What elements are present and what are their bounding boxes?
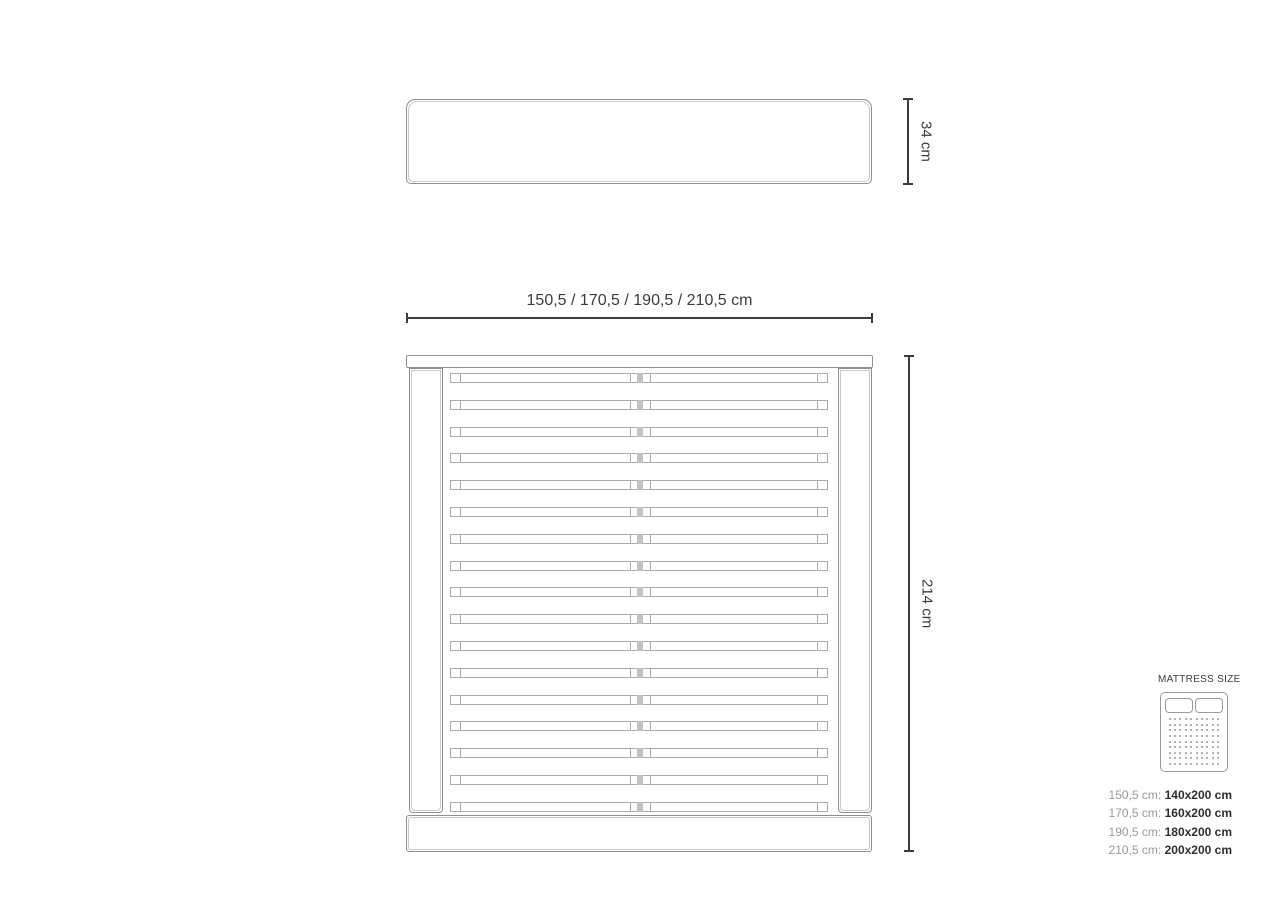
center-rail-bar (637, 695, 643, 705)
legend-row: 210,5 cm: 200x200 cm (1109, 841, 1232, 859)
dot (1185, 735, 1187, 737)
dot (1196, 735, 1198, 737)
dot (1169, 741, 1171, 743)
dot (1190, 741, 1192, 743)
slat-clip (817, 561, 828, 571)
slat-clip (817, 507, 828, 517)
dot (1217, 763, 1219, 765)
dot (1190, 752, 1192, 754)
dot (1212, 763, 1214, 765)
mattress-size-value: 180x200 cm (1165, 825, 1232, 839)
mattress-size-legend: MATTRESS SIZE 150,5 cm: 140x200 cm 170,5… (1090, 674, 1232, 859)
center-rail-bar (637, 427, 643, 437)
slat (450, 668, 828, 678)
center-rail-bar (637, 400, 643, 410)
slat (450, 561, 828, 571)
dot (1212, 741, 1214, 743)
dot (1179, 718, 1181, 720)
dot (1196, 724, 1198, 726)
dot (1196, 757, 1198, 759)
slat (450, 802, 828, 812)
slat-clip (450, 802, 461, 812)
center-rail-line (650, 641, 651, 651)
slat-clip (450, 453, 461, 463)
center-rail-bar (637, 534, 643, 544)
dimension-cap (903, 98, 913, 100)
center-rail-line (650, 587, 651, 597)
dot (1185, 746, 1187, 748)
dot (1185, 724, 1187, 726)
center-rail-line (630, 373, 631, 383)
center-rail-bar (637, 668, 643, 678)
center-rail-line (650, 775, 651, 785)
slat-clip (450, 641, 461, 651)
left-side-rail (409, 368, 443, 813)
dot (1201, 729, 1203, 731)
dimension-cap (904, 850, 914, 852)
center-rail-bar (637, 561, 643, 571)
slat (450, 748, 828, 758)
center-rail-bar (637, 614, 643, 624)
dot (1206, 735, 1208, 737)
headboard-height-dimension-line (907, 98, 909, 185)
dot (1179, 746, 1181, 748)
dot (1217, 746, 1219, 748)
dot (1206, 729, 1208, 731)
center-rail-bar (637, 373, 643, 383)
dot (1212, 729, 1214, 731)
center-rail-line (650, 668, 651, 678)
frame-width-label: 210,5 cm: (1109, 843, 1162, 857)
slat-clip (817, 748, 828, 758)
mattress-icon-block: MATTRESS SIZE (1158, 674, 1230, 772)
frame-width-label: 150,5 cm: (1109, 788, 1162, 802)
center-rail-line (650, 561, 651, 571)
slat-clip (817, 480, 828, 490)
slat (450, 507, 828, 517)
dot (1206, 757, 1208, 759)
center-rail-line (650, 534, 651, 544)
dot (1179, 757, 1181, 759)
slat-clip (450, 507, 461, 517)
slat (450, 427, 828, 437)
dot (1169, 746, 1171, 748)
dot (1212, 746, 1214, 748)
dot (1174, 746, 1176, 748)
center-rail-bar (637, 721, 643, 731)
center-rail-line (630, 802, 631, 812)
dot (1185, 718, 1187, 720)
dot (1174, 735, 1176, 737)
dot (1196, 718, 1198, 720)
dot (1201, 718, 1203, 720)
dot (1196, 741, 1198, 743)
slats-container (450, 368, 828, 815)
legend-row: 150,5 cm: 140x200 cm (1109, 786, 1232, 804)
center-rail-bar (637, 480, 643, 490)
slat (450, 453, 828, 463)
dot (1212, 757, 1214, 759)
dot (1201, 735, 1203, 737)
center-rail-line (650, 802, 651, 812)
center-rail-line (630, 748, 631, 758)
slat (450, 721, 828, 731)
dot (1206, 724, 1208, 726)
center-rail-line (630, 668, 631, 678)
dot (1190, 718, 1192, 720)
slat-clip (450, 748, 461, 758)
slat-clip (450, 721, 461, 731)
center-rail-line (650, 695, 651, 705)
center-rail-bar (637, 775, 643, 785)
dot (1206, 741, 1208, 743)
slat-clip (817, 668, 828, 678)
mattress-dots (1167, 718, 1221, 765)
slat (450, 775, 828, 785)
headboard-side-view (406, 99, 872, 184)
right-side-rail (838, 368, 872, 813)
dot (1201, 757, 1203, 759)
slat-clip (817, 695, 828, 705)
dot (1169, 763, 1171, 765)
mattress-size-value: 200x200 cm (1165, 843, 1232, 857)
dot (1212, 718, 1214, 720)
dot (1206, 746, 1208, 748)
slat-clip (450, 668, 461, 678)
dot (1212, 752, 1214, 754)
legend-row: 170,5 cm: 160x200 cm (1109, 804, 1232, 822)
dot (1179, 752, 1181, 754)
slat-clip (817, 427, 828, 437)
dimension-tick (406, 313, 408, 323)
slat-clip (817, 373, 828, 383)
dot (1190, 763, 1192, 765)
center-rail-line (630, 587, 631, 597)
slat (450, 641, 828, 651)
center-rail-bar (637, 507, 643, 517)
dot (1185, 752, 1187, 754)
center-rail-line (650, 614, 651, 624)
dot (1174, 718, 1176, 720)
length-dimension-label: 214 cm (914, 355, 940, 852)
dot (1169, 757, 1171, 759)
center-rail-line (650, 748, 651, 758)
slat-clip (817, 775, 828, 785)
dot (1169, 718, 1171, 720)
dimension-tick (871, 313, 873, 323)
dot (1201, 724, 1203, 726)
dot (1196, 763, 1198, 765)
center-rail-line (630, 641, 631, 651)
slat-clip (817, 400, 828, 410)
headboard-height-dimension-label: 34 cm (913, 98, 939, 185)
slat-clip (450, 775, 461, 785)
slat-clip (817, 614, 828, 624)
dot (1206, 752, 1208, 754)
dot (1201, 741, 1203, 743)
dot (1217, 752, 1219, 754)
slat-clip (817, 641, 828, 651)
dot (1217, 757, 1219, 759)
dimension-cap (904, 355, 914, 357)
dot (1206, 718, 1208, 720)
center-rail-line (630, 427, 631, 437)
center-rail-line (650, 480, 651, 490)
dot (1169, 729, 1171, 731)
slat-clip (817, 721, 828, 731)
dot (1190, 735, 1192, 737)
center-rail-line (630, 561, 631, 571)
dot (1179, 741, 1181, 743)
center-rail-line (630, 507, 631, 517)
dot (1217, 735, 1219, 737)
dot (1201, 752, 1203, 754)
center-rail-bar (637, 641, 643, 651)
center-rail-line (630, 453, 631, 463)
dot (1185, 741, 1187, 743)
dot (1190, 724, 1192, 726)
dot (1174, 763, 1176, 765)
dot (1185, 763, 1187, 765)
dot (1174, 757, 1176, 759)
width-dimension-label: 150,5 / 170,5 / 190,5 / 210,5 cm (406, 292, 873, 310)
bed-dimension-diagram: 34 cm 150,5 / 170,5 / 190,5 / 210,5 cm 2… (0, 0, 1280, 905)
slat (450, 534, 828, 544)
dot (1212, 724, 1214, 726)
pillow-icon (1195, 698, 1223, 713)
center-rail-line (630, 695, 631, 705)
dot (1190, 729, 1192, 731)
dot (1179, 763, 1181, 765)
center-rail-line (650, 400, 651, 410)
slat-clip (450, 480, 461, 490)
slat-clip (450, 614, 461, 624)
dot (1179, 735, 1181, 737)
center-rail-line (650, 507, 651, 517)
footboard (406, 815, 872, 852)
mattress-size-value: 160x200 cm (1165, 806, 1232, 820)
center-rail-line (630, 400, 631, 410)
dot (1169, 735, 1171, 737)
slat (450, 587, 828, 597)
center-rail-bar (637, 587, 643, 597)
center-rail-bar (637, 453, 643, 463)
slat-clip (450, 400, 461, 410)
mattress-icon (1160, 692, 1228, 772)
center-rail-line (650, 453, 651, 463)
slat-clip (817, 453, 828, 463)
center-rail-line (650, 721, 651, 731)
dot (1217, 724, 1219, 726)
dot (1179, 724, 1181, 726)
dot (1206, 763, 1208, 765)
dot (1201, 763, 1203, 765)
dot (1212, 735, 1214, 737)
center-rail-line (630, 721, 631, 731)
dot (1174, 752, 1176, 754)
slat-clip (450, 695, 461, 705)
slat-clip (817, 534, 828, 544)
legend-row: 190,5 cm: 180x200 cm (1109, 823, 1232, 841)
dot (1217, 718, 1219, 720)
dot (1190, 757, 1192, 759)
dot (1196, 746, 1198, 748)
dot (1201, 746, 1203, 748)
dot (1179, 729, 1181, 731)
legend-rows: 150,5 cm: 140x200 cm 170,5 cm: 160x200 c… (1109, 786, 1232, 860)
center-rail-line (650, 427, 651, 437)
slat-clip (450, 427, 461, 437)
dot (1169, 752, 1171, 754)
slat-clip (450, 534, 461, 544)
slat-clip (450, 373, 461, 383)
slat (450, 695, 828, 705)
dot (1174, 729, 1176, 731)
dot (1185, 729, 1187, 731)
slat-clip (817, 802, 828, 812)
center-rail-line (630, 614, 631, 624)
slat (450, 373, 828, 383)
dot (1196, 729, 1198, 731)
dot (1196, 752, 1198, 754)
dot (1169, 724, 1171, 726)
center-rail-bar (637, 748, 643, 758)
slat-clip (817, 587, 828, 597)
frame-width-label: 190,5 cm: (1109, 825, 1162, 839)
center-rail-line (630, 775, 631, 785)
dot (1217, 729, 1219, 731)
pillow-icon (1165, 698, 1193, 713)
slat-clip (450, 587, 461, 597)
dot (1190, 746, 1192, 748)
dot (1217, 741, 1219, 743)
mattress-size-value: 140x200 cm (1165, 788, 1232, 802)
center-rail-line (630, 534, 631, 544)
headboard-top-view (406, 355, 873, 368)
width-dimension-line (406, 317, 873, 319)
dot (1185, 757, 1187, 759)
frame-width-label: 170,5 cm: (1109, 806, 1162, 820)
dot (1174, 741, 1176, 743)
center-rail-line (630, 480, 631, 490)
slat-clip (450, 561, 461, 571)
dimension-cap (903, 183, 913, 185)
dot (1174, 724, 1176, 726)
slat (450, 400, 828, 410)
center-rail-line (650, 373, 651, 383)
length-dimension-line (908, 355, 910, 852)
slat (450, 480, 828, 490)
slat (450, 614, 828, 624)
center-rail-bar (637, 802, 643, 812)
legend-title: MATTRESS SIZE (1158, 674, 1230, 685)
